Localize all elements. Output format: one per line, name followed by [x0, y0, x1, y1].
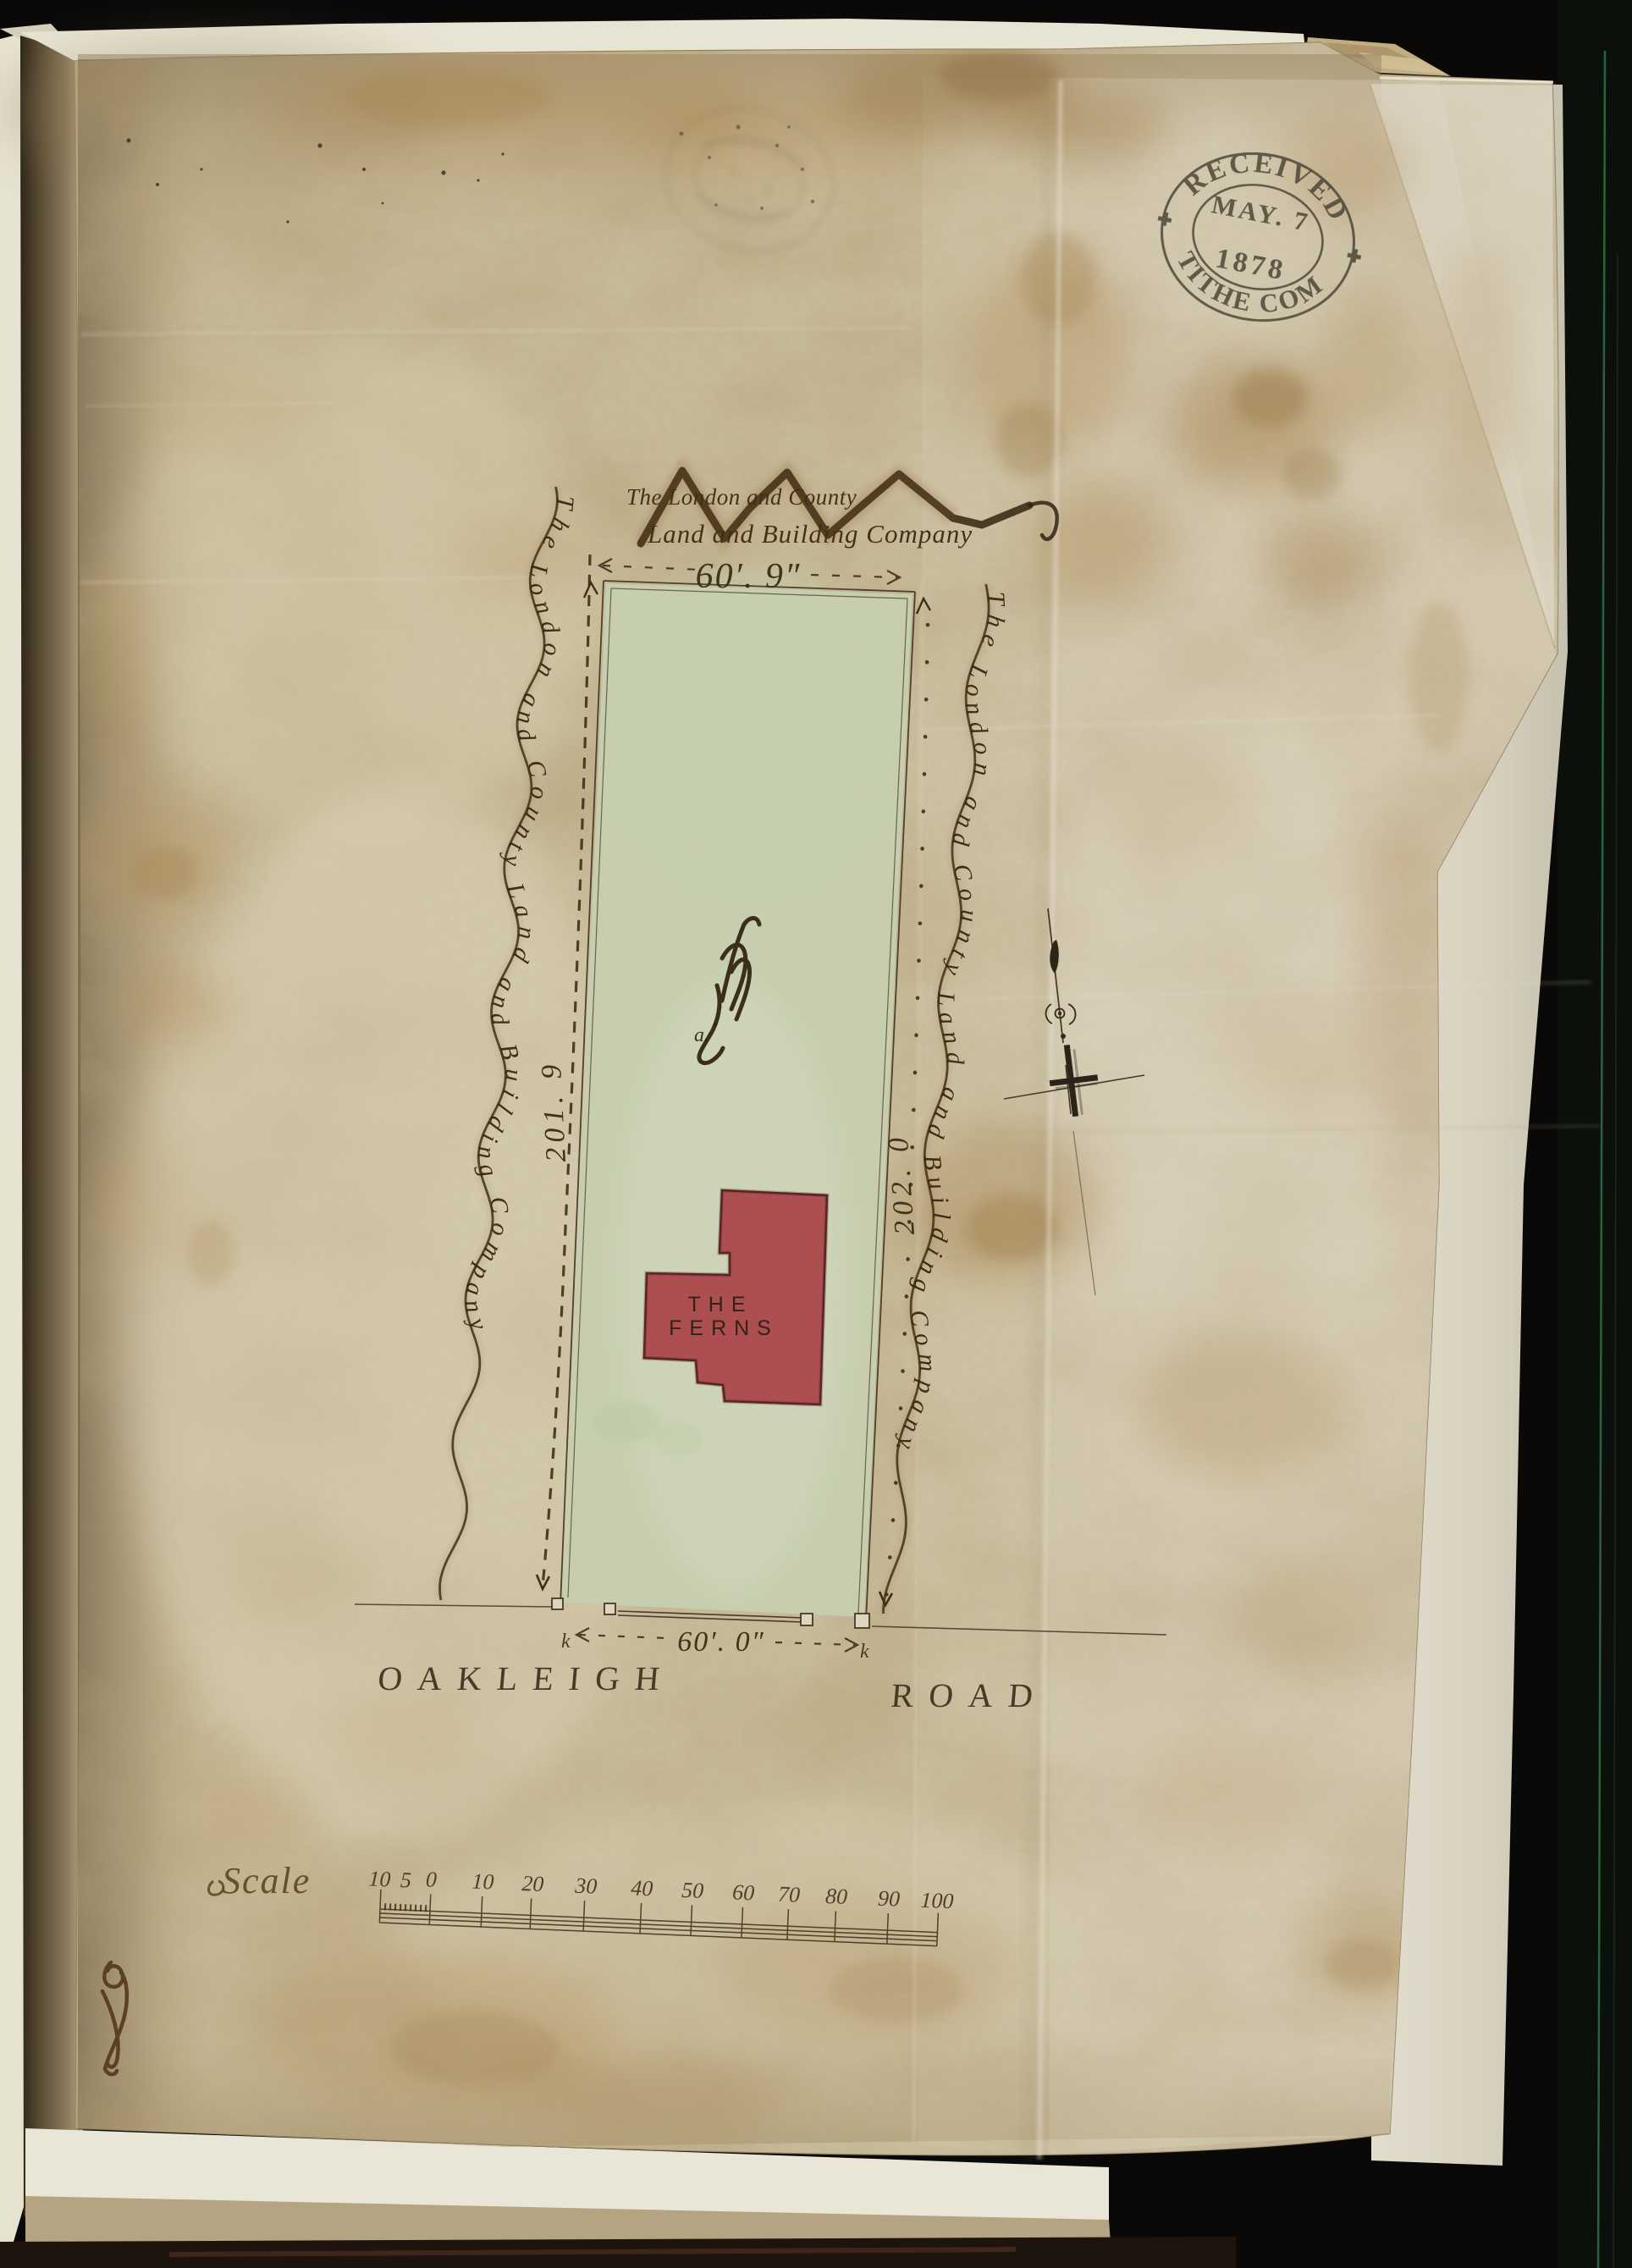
svg-text:k: k — [561, 1631, 571, 1653]
svg-text:k: k — [860, 1641, 869, 1663]
svg-text:THE: THE — [688, 1293, 753, 1316]
svg-text:Land and Building Company: Land and Building Company — [647, 519, 973, 549]
svg-text:90: 90 — [877, 1886, 900, 1912]
svg-text:20: 20 — [521, 1871, 544, 1896]
svg-text:10: 10 — [368, 1866, 391, 1891]
svg-text:a.: a. — [694, 1024, 709, 1046]
svg-text:70: 70 — [778, 1882, 801, 1907]
svg-text:0: 0 — [425, 1867, 437, 1892]
svg-text:30: 30 — [574, 1873, 598, 1899]
svg-text:100: 100 — [920, 1888, 954, 1914]
svg-text:60′. 0″: 60′. 0″ — [677, 1626, 765, 1658]
svg-text:FERNS: FERNS — [669, 1316, 779, 1340]
svg-text:Scale: Scale — [222, 1860, 311, 1901]
svg-text:OAKLEIGH: OAKLEIGH — [377, 1659, 676, 1697]
svg-text:60′. 9″: 60′. 9″ — [696, 557, 802, 596]
svg-text:201. 9: 201. 9 — [536, 1059, 572, 1163]
svg-text:10: 10 — [471, 1869, 494, 1895]
svg-text:40: 40 — [631, 1875, 653, 1901]
svg-text:5: 5 — [400, 1868, 411, 1893]
svg-text:50: 50 — [681, 1878, 704, 1903]
svg-text:60: 60 — [732, 1879, 755, 1905]
svg-text:ROAD: ROAD — [890, 1676, 1050, 1714]
svg-text:80: 80 — [825, 1884, 848, 1909]
